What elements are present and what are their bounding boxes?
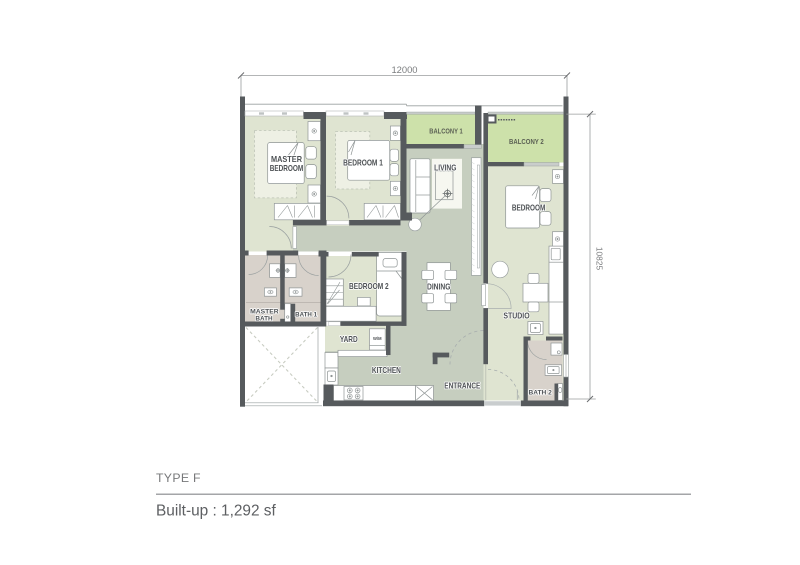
svg-text:BEDROOM 2: BEDROOM 2 <box>349 282 389 291</box>
svg-text:MASTER: MASTER <box>250 308 279 315</box>
svg-text:BEDROOM: BEDROOM <box>512 203 546 212</box>
svg-text:TYPE F: TYPE F <box>156 471 201 485</box>
svg-text:Built-up : 1,292 sf: Built-up : 1,292 sf <box>156 502 276 519</box>
svg-text:12000: 12000 <box>391 64 417 75</box>
svg-text:BEDROOM: BEDROOM <box>270 164 304 173</box>
svg-text:BALCONY 1: BALCONY 1 <box>429 129 463 136</box>
svg-text:STUDIO: STUDIO <box>503 312 530 321</box>
svg-text:W/M: W/M <box>373 336 382 341</box>
svg-text:YARD: YARD <box>340 335 358 344</box>
svg-text:BATH 2: BATH 2 <box>528 390 552 397</box>
svg-text:BALCONY 2: BALCONY 2 <box>509 139 544 146</box>
svg-text:BATH: BATH <box>255 315 273 322</box>
svg-text:MASTER: MASTER <box>271 155 302 164</box>
svg-text:BEDROOM 1: BEDROOM 1 <box>343 158 383 167</box>
svg-text:BATH 1: BATH 1 <box>295 311 317 318</box>
svg-text:ENTRANCE: ENTRANCE <box>444 381 481 390</box>
svg-text:KITCHEN: KITCHEN <box>372 366 401 375</box>
svg-text:LIVING: LIVING <box>434 164 456 173</box>
svg-text:10825: 10825 <box>595 247 605 271</box>
svg-text:DINING: DINING <box>427 283 450 292</box>
